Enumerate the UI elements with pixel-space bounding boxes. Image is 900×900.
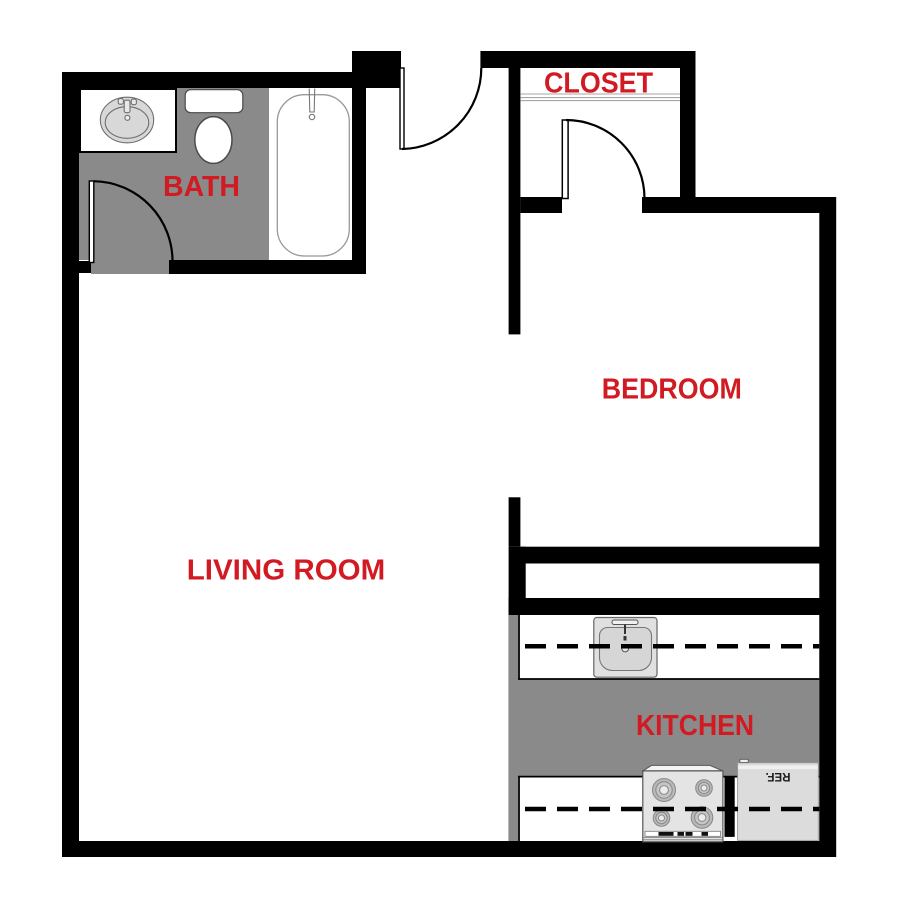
svg-text:CLOSET: CLOSET: [544, 68, 653, 100]
svg-text:KITCHEN: KITCHEN: [636, 710, 754, 742]
svg-text:BEDROOM: BEDROOM: [602, 374, 742, 406]
svg-text:BATH: BATH: [163, 171, 240, 203]
svg-text:LIVING ROOM: LIVING ROOM: [187, 555, 386, 587]
svg-text:REF.: REF.: [766, 770, 791, 782]
